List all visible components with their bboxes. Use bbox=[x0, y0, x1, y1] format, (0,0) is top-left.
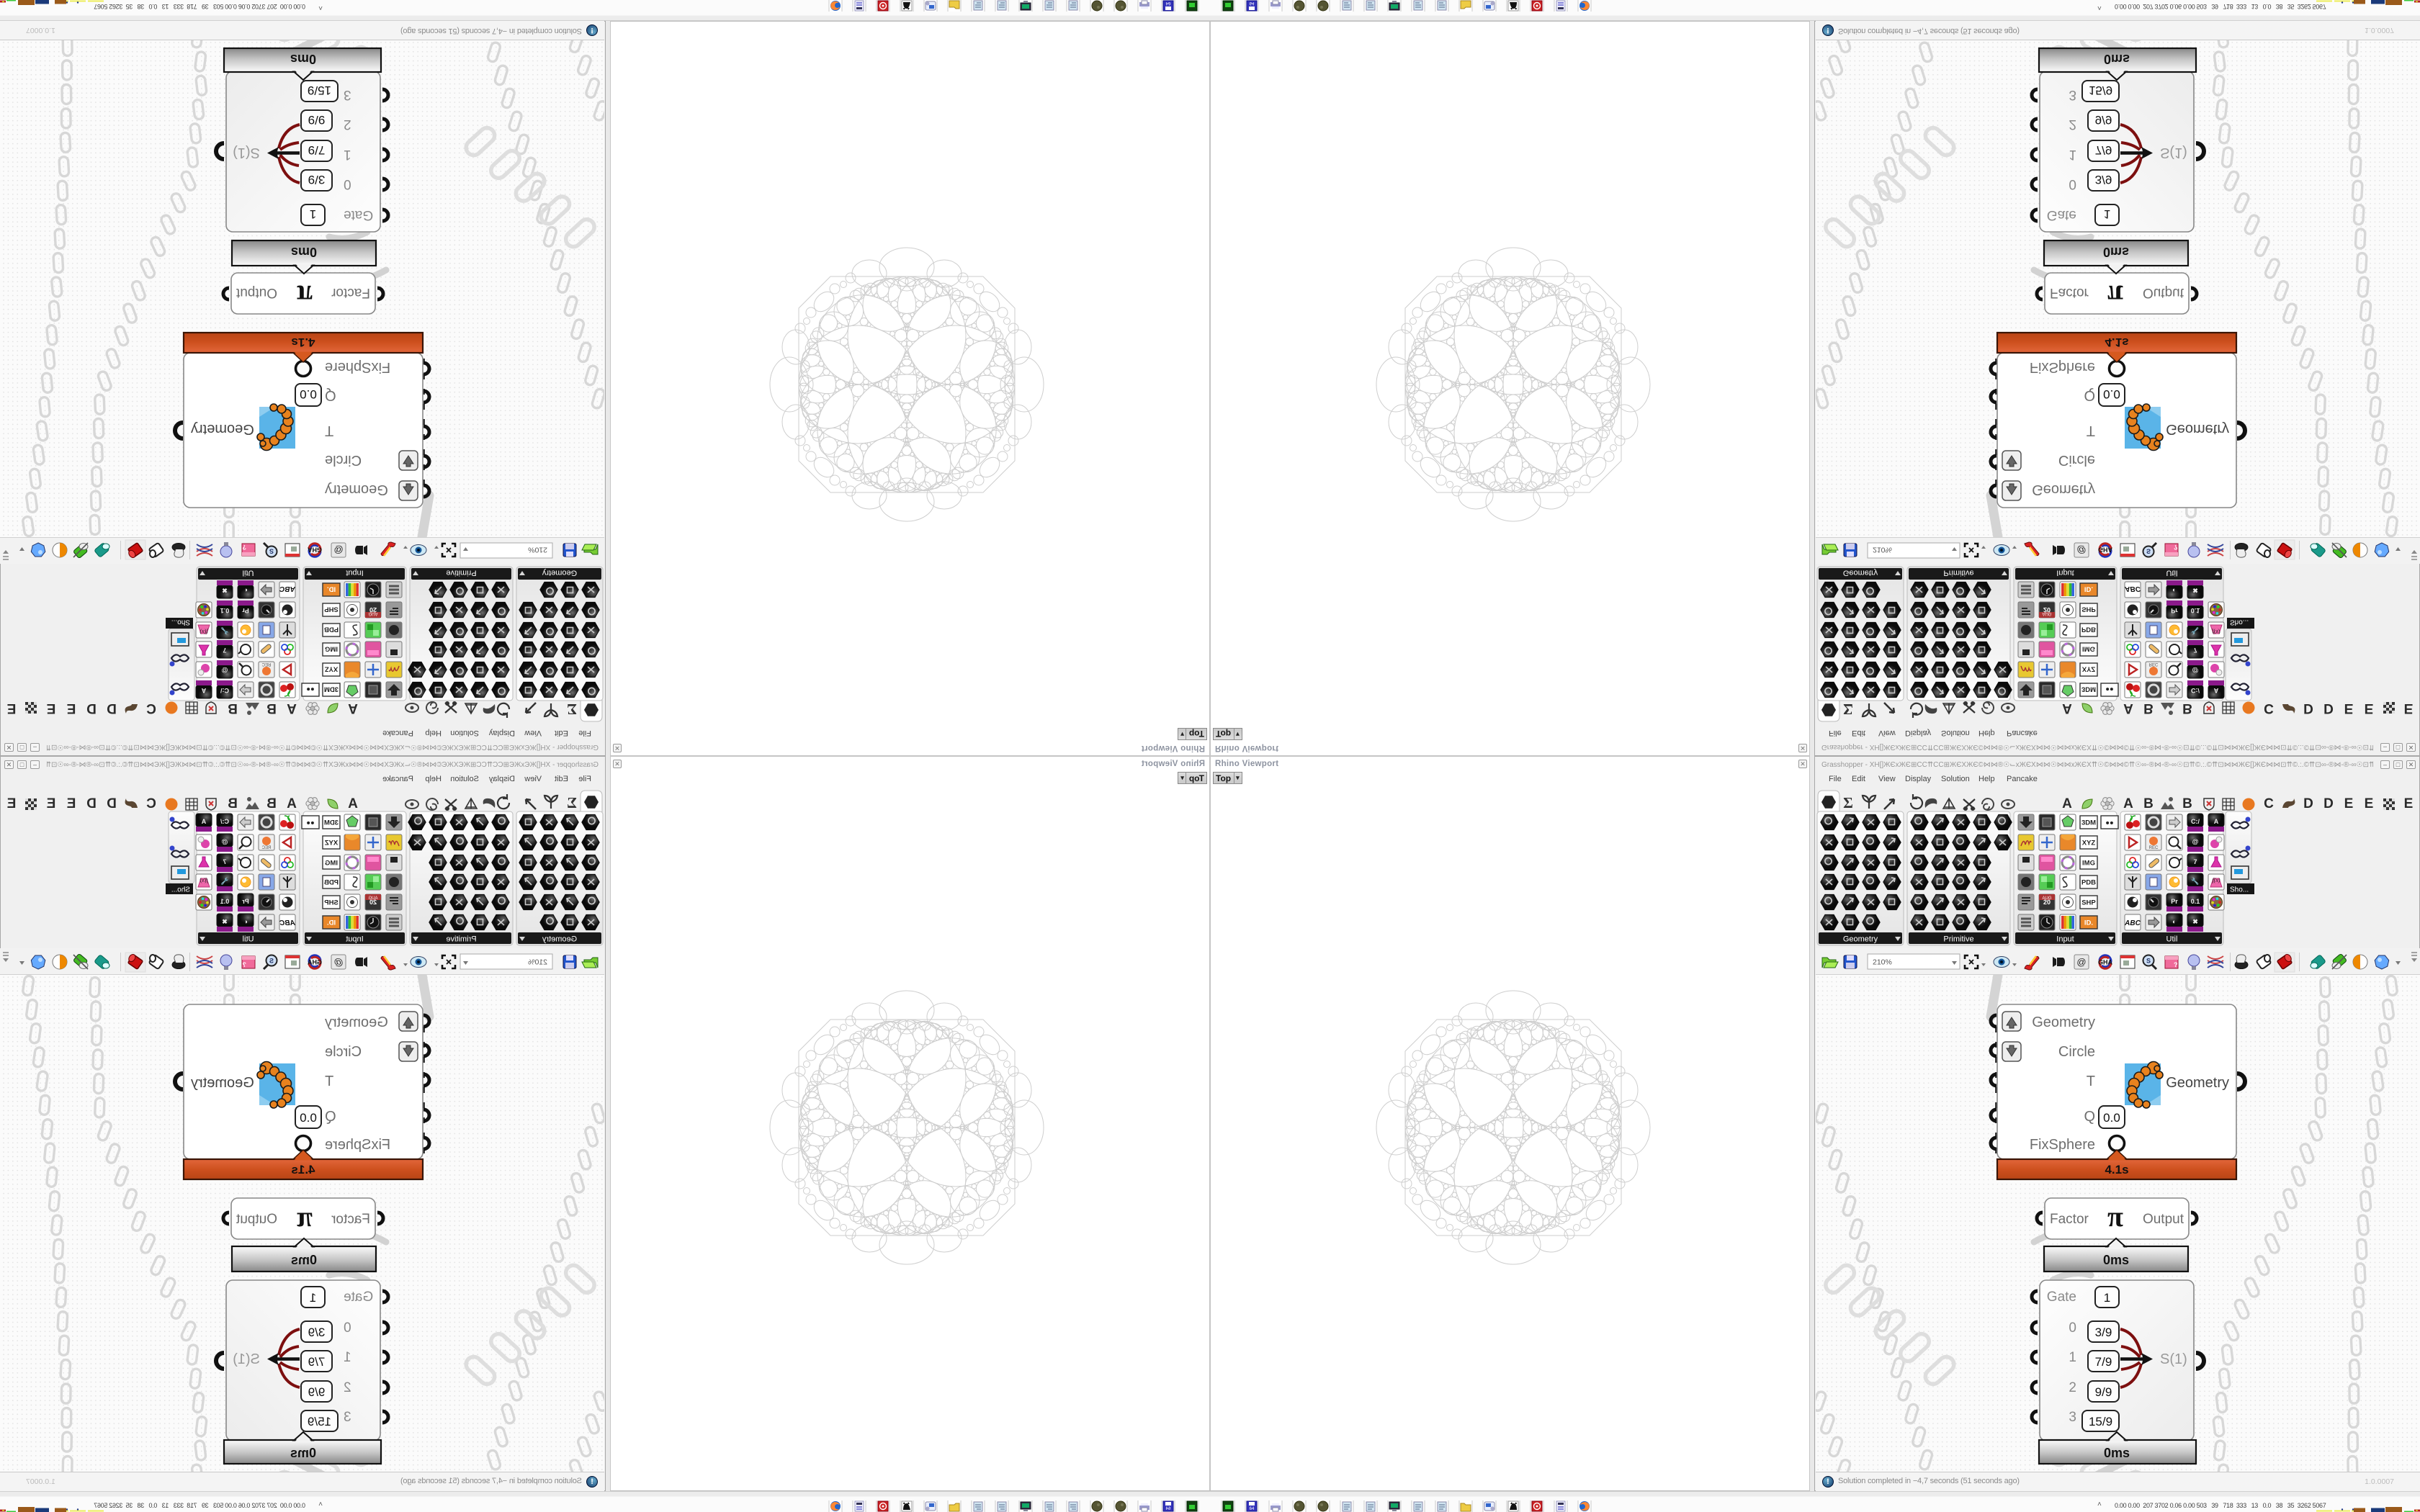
svg-text:0ms: 0ms bbox=[2103, 245, 2129, 259]
svg-text:0ms: 0ms bbox=[2104, 1446, 2130, 1460]
svg-text:3/9: 3/9 bbox=[308, 173, 326, 186]
svg-text:Gate: Gate bbox=[344, 1290, 373, 1305]
svg-text:15/9: 15/9 bbox=[308, 84, 331, 97]
svg-text:Factor: Factor bbox=[2050, 1212, 2089, 1227]
svg-text:9/9: 9/9 bbox=[308, 1385, 326, 1399]
svg-text:0.0: 0.0 bbox=[2103, 387, 2120, 401]
svg-text:π: π bbox=[297, 1200, 313, 1233]
svg-text:1: 1 bbox=[344, 147, 351, 162]
svg-text:Output: Output bbox=[236, 1212, 277, 1227]
svg-text:1: 1 bbox=[2069, 1350, 2076, 1365]
svg-text:Gate: Gate bbox=[2047, 207, 2076, 222]
svg-text:1: 1 bbox=[2104, 207, 2110, 221]
svg-text:15/9: 15/9 bbox=[308, 1415, 331, 1428]
svg-text:2: 2 bbox=[344, 1380, 351, 1395]
svg-text:0ms: 0ms bbox=[2103, 1253, 2129, 1267]
svg-text:π: π bbox=[297, 279, 313, 312]
svg-text:3: 3 bbox=[2069, 87, 2076, 102]
svg-text:3: 3 bbox=[344, 87, 351, 102]
svg-text:Gate: Gate bbox=[2047, 1290, 2076, 1305]
svg-text:4.1s: 4.1s bbox=[2105, 1163, 2128, 1176]
svg-text:3: 3 bbox=[344, 1410, 351, 1425]
svg-text:Factor: Factor bbox=[2050, 285, 2089, 300]
svg-text:Output: Output bbox=[2143, 285, 2184, 300]
svg-text:S(1): S(1) bbox=[233, 145, 260, 161]
svg-text:7/9: 7/9 bbox=[2095, 1355, 2112, 1369]
svg-text:1: 1 bbox=[310, 207, 316, 221]
svg-text:Output: Output bbox=[236, 285, 277, 300]
svg-text:3/9: 3/9 bbox=[2095, 1326, 2112, 1339]
svg-text:Factor: Factor bbox=[331, 1212, 370, 1227]
svg-text:4.1s: 4.1s bbox=[291, 1163, 315, 1176]
svg-text:3: 3 bbox=[2069, 1410, 2076, 1425]
svg-text:0: 0 bbox=[2069, 176, 2076, 192]
svg-text:0.0: 0.0 bbox=[2103, 1111, 2120, 1125]
svg-text:0ms: 0ms bbox=[2104, 52, 2130, 66]
svg-text:15/9: 15/9 bbox=[2089, 84, 2112, 97]
svg-text:S(1): S(1) bbox=[2160, 145, 2187, 161]
svg-text:S(1): S(1) bbox=[233, 1351, 260, 1367]
svg-text:0ms: 0ms bbox=[290, 1446, 316, 1460]
svg-text:0.0: 0.0 bbox=[300, 1111, 317, 1125]
svg-text:1: 1 bbox=[310, 1291, 316, 1305]
svg-text:3/9: 3/9 bbox=[308, 1326, 326, 1339]
svg-text:Factor: Factor bbox=[331, 285, 370, 300]
svg-text:9/9: 9/9 bbox=[2095, 1385, 2112, 1399]
svg-text:0ms: 0ms bbox=[291, 245, 317, 259]
svg-text:2: 2 bbox=[344, 117, 351, 132]
svg-text:3/9: 3/9 bbox=[2095, 173, 2112, 186]
svg-text:Gate: Gate bbox=[344, 207, 373, 222]
svg-text:4.1s: 4.1s bbox=[291, 336, 315, 349]
svg-text:π: π bbox=[2107, 279, 2123, 312]
svg-text:0: 0 bbox=[344, 1320, 351, 1336]
svg-text:15/9: 15/9 bbox=[2089, 1415, 2112, 1428]
svg-text:1: 1 bbox=[344, 1350, 351, 1365]
svg-text:9/9: 9/9 bbox=[308, 113, 326, 127]
svg-text:Output: Output bbox=[2143, 1212, 2184, 1227]
svg-text:4.1s: 4.1s bbox=[2105, 336, 2128, 349]
svg-text:7/9: 7/9 bbox=[308, 143, 326, 157]
svg-text:7/9: 7/9 bbox=[2095, 143, 2112, 157]
svg-text:0.0: 0.0 bbox=[300, 387, 317, 401]
svg-text:2: 2 bbox=[2069, 1380, 2076, 1395]
svg-text:S(1): S(1) bbox=[2160, 1351, 2187, 1367]
svg-text:1: 1 bbox=[2104, 1291, 2110, 1305]
svg-text:2: 2 bbox=[2069, 117, 2076, 132]
svg-text:π: π bbox=[2107, 1200, 2123, 1233]
svg-text:0ms: 0ms bbox=[290, 52, 316, 66]
svg-text:0: 0 bbox=[344, 176, 351, 192]
svg-text:0: 0 bbox=[2069, 1320, 2076, 1336]
svg-text:9/9: 9/9 bbox=[2095, 113, 2112, 127]
svg-text:7/9: 7/9 bbox=[308, 1355, 326, 1369]
svg-text:1: 1 bbox=[2069, 147, 2076, 162]
svg-text:0ms: 0ms bbox=[291, 1253, 317, 1267]
